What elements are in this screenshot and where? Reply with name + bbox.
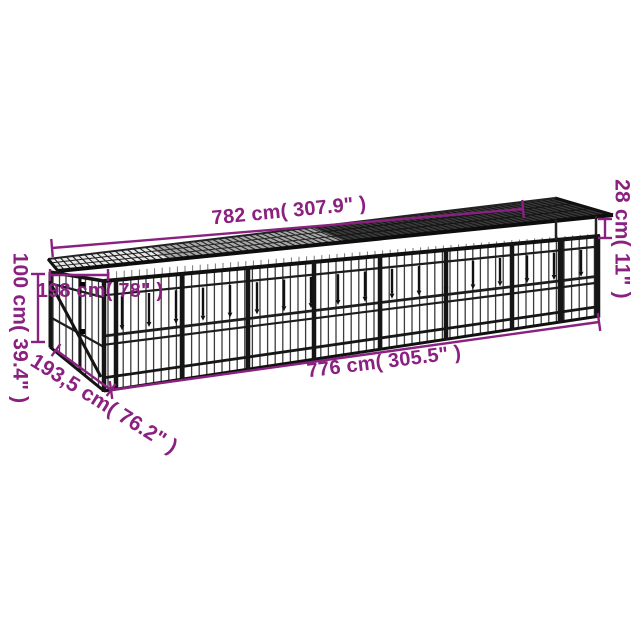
kennel-illustration xyxy=(0,0,640,640)
product-dimension-diagram: 782 cm( 307.9" ) 776 cm( 305.5" ) 100 cm… xyxy=(0,0,640,640)
dimension-label-roof-height: 28 cm( 11" ) xyxy=(610,179,633,299)
dimension-label-depth-top: 198 cm( 78" ) xyxy=(37,280,164,302)
dimension-label-height: 100 cm( 39.4" ) xyxy=(8,253,31,404)
